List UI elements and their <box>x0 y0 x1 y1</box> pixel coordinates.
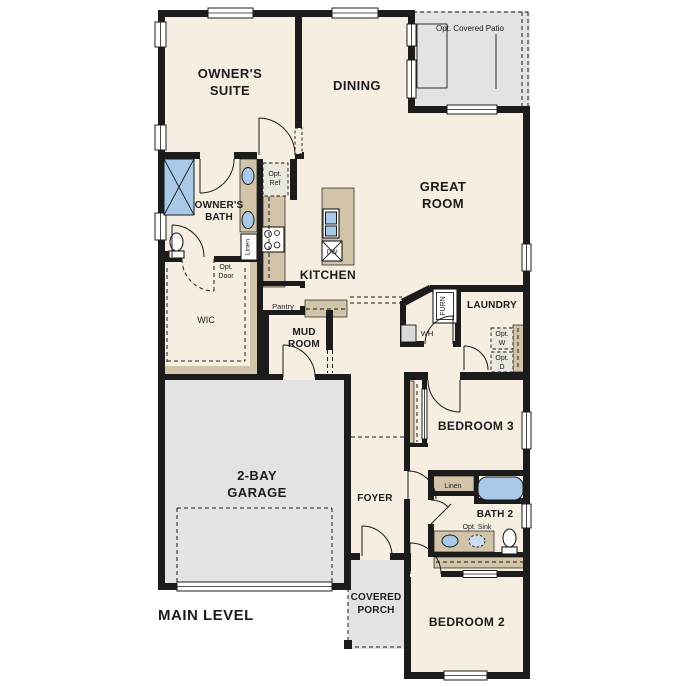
foyer-label: FOYER <box>357 493 393 504</box>
water-heater <box>401 325 416 342</box>
bedroom2-label: BEDROOM 2 <box>429 615 505 629</box>
opt-washer-label: Opt. <box>495 331 508 338</box>
owners-bath-label: OWNER'S <box>195 200 244 211</box>
sink-icon <box>442 535 458 547</box>
owners-suite-label: OWNER'S <box>198 66 262 81</box>
cooktop <box>262 227 284 252</box>
opt-dryer-label: D <box>499 364 504 371</box>
opt-door-label: Opt. <box>219 264 232 271</box>
laundry-label: LAUNDRY <box>467 300 517 311</box>
garage-label: GARAGE <box>227 485 286 500</box>
owners-bath-label: BATH <box>205 212 233 223</box>
mud-room-label: ROOM <box>288 339 320 350</box>
garage-label: 2-BAY <box>237 468 277 483</box>
owners-toilet <box>169 233 184 258</box>
great-room-label: GREAT <box>420 179 467 194</box>
owners-linen-label: Linen <box>245 239 252 255</box>
sink-icon <box>242 168 254 185</box>
opt-dryer-label: Opt. <box>495 355 508 362</box>
covered-porch-label: PORCH <box>357 605 394 616</box>
opt-washer-label: W <box>499 340 506 347</box>
sink-icon <box>242 212 254 229</box>
floor-plan-page: OWNER'S SUITE DINING GREAT ROOM Opt. Cov… <box>0 0 687 687</box>
bath2-label: BATH 2 <box>477 509 514 520</box>
porch-floor <box>348 558 406 649</box>
dining-cased-opening <box>295 128 302 154</box>
shower <box>164 159 194 215</box>
opt-covered-patio-label: Opt. Covered Patio <box>436 24 505 33</box>
kitchen-label: KITCHEN <box>300 268 356 282</box>
wic-wall-horizontal <box>162 366 258 374</box>
pantry-label: Pantry <box>272 302 294 311</box>
furnace-label: FURN <box>440 296 447 315</box>
wic-wall-vertical <box>250 262 257 376</box>
bathtub <box>478 477 523 500</box>
mud-room-label: MUD <box>292 327 315 338</box>
opt-sink-label: Opt. Sink <box>463 524 492 531</box>
owners-suite-label: SUITE <box>210 83 250 98</box>
bath2-toilet <box>502 529 517 554</box>
bedroom3-label: BEDROOM 3 <box>438 419 514 433</box>
opt-ref-label: Ref <box>270 180 281 187</box>
great-room-label: ROOM <box>422 196 464 211</box>
wic-label: WIC <box>197 315 215 325</box>
floor-plan-drawing: OWNER'S SUITE DINING GREAT ROOM Opt. Cov… <box>0 0 687 687</box>
opt-door-label: Door <box>218 273 234 280</box>
dining-label: DINING <box>333 78 381 93</box>
hall-linen-label: Linen <box>444 483 461 490</box>
dishwasher-label: DW <box>327 249 339 256</box>
main-level-title: MAIN LEVEL <box>158 607 254 624</box>
opt-ref-label: Opt. <box>268 171 281 178</box>
opt-sink-icon <box>469 535 485 547</box>
covered-porch-label: COVERED <box>351 592 402 603</box>
water-heater-label: WH <box>421 329 434 338</box>
island-sink <box>323 209 339 238</box>
